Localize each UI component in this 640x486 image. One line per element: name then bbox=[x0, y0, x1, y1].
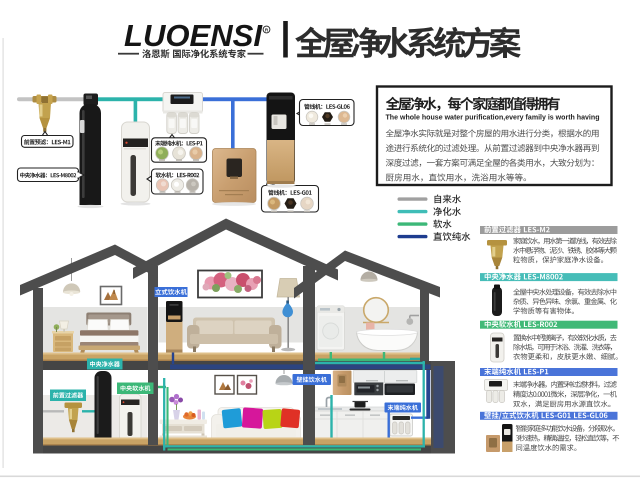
svg-text:The whole house water purifica: The whole house water purification,every… bbox=[386, 113, 600, 122]
svg-text:LUOENSI: LUOENSI bbox=[124, 19, 263, 53]
